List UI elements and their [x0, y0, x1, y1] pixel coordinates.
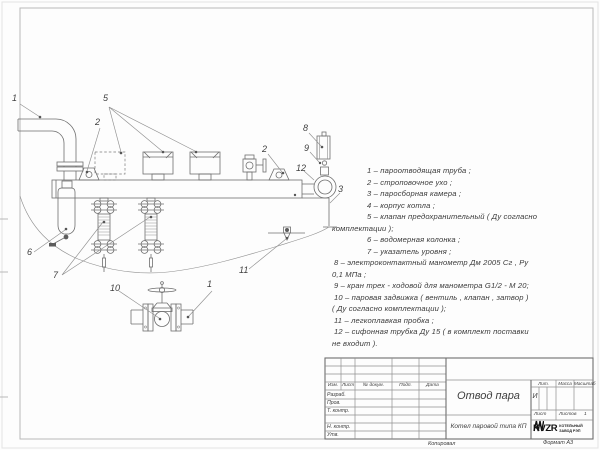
tb-header-podp: Подп.	[392, 383, 419, 388]
callout-safety-valves: 5	[103, 93, 108, 103]
tb-header-list: Лист	[341, 383, 355, 388]
parts-list-item: 5 – клапан предохранительный ( Ду соглас…	[367, 211, 595, 223]
lifting-lug-right	[269, 169, 289, 180]
callout-gate-valve: 10	[110, 283, 120, 293]
gate-valve	[131, 282, 193, 331]
parts-list-item: 2 – строповочное ухо ;	[367, 177, 595, 189]
boiler-shell-break-line	[20, 196, 329, 273]
drawing-sheet: 1 5 2 2 8 9 12 3 6 7 10 1 11 1 – пароотв…	[0, 0, 600, 450]
callout-siphon: 12	[296, 163, 306, 173]
callout-lug-left: 2	[95, 117, 100, 127]
tb-sheets-value: 1	[584, 412, 587, 417]
tb-header-data: Дата	[419, 383, 446, 388]
tb-scale-label: Масштаб	[574, 381, 593, 386]
parts-list-item: 1 – пароотводящая труба ;	[367, 165, 595, 177]
callout-cock: 9	[304, 143, 309, 153]
parts-list: 1 – пароотводящая труба ; 2 – строповочн…	[329, 165, 595, 349]
tb-lit-label: Лит.	[531, 381, 556, 386]
company-subtitle: КОТЕЛЬНЫЙ ЗАВОД РЭП	[559, 424, 582, 432]
parts-list-item: 10 – паровая задвижка ( вентиль , клапан…	[334, 292, 595, 304]
parts-list-item-wrap: не входит ).	[332, 338, 595, 350]
callout-manometer: 8	[303, 123, 308, 133]
tb-staff-nkontr: Н. контр.	[327, 424, 350, 430]
callout-column: 6	[27, 247, 32, 257]
parts-list-item-wrap: комплектации );	[332, 223, 595, 235]
tb-sheets-label: Листов	[559, 412, 576, 417]
coil-icon	[533, 420, 544, 432]
tb-staff-prov: Пров.	[327, 400, 341, 406]
parts-list-item: 8 – электроконтактный манометр Дм 2005 С…	[334, 257, 595, 269]
parts-list-item: 11 – легкоплавкая пробка ;	[334, 315, 595, 327]
tb-staff-tkontr: Т. контр.	[327, 408, 349, 414]
callout-lug-right: 2	[262, 144, 267, 154]
tb-staff-utv: Утв.	[327, 432, 339, 438]
parts-list-item: 6 – водомерная колонка ;	[367, 234, 595, 246]
tb-mass-label: Масса	[556, 381, 574, 386]
callout-pipe-2: 1	[207, 279, 212, 289]
format-label: Формат А3	[543, 440, 573, 446]
water-gauge-column	[49, 181, 75, 247]
level-indicator-1	[91, 198, 117, 272]
small-valve	[243, 155, 266, 180]
safety-valve-2	[190, 152, 220, 180]
parts-list-item-wrap: 0,1 МПа ;	[332, 269, 595, 281]
parts-list-item: 4 – корпус котла ;	[367, 200, 595, 212]
parts-list-item-wrap: ( Ду согласно комплектации );	[332, 303, 595, 315]
tb-header-izm: Изм.	[325, 383, 341, 388]
parts-list-item: 3 – паросборная камера ;	[367, 188, 595, 200]
level-indicator-2	[138, 198, 164, 272]
safety-valve-optional	[95, 152, 125, 180]
company-subtitle-line2: ЗАВОД РЭП	[559, 429, 580, 433]
safety-valve-1	[143, 152, 173, 180]
callout-plug: 11	[239, 265, 248, 275]
steam-manifold	[52, 180, 337, 227]
tb-lit-value: И	[531, 393, 539, 400]
product-name: Котел паровой типа КП	[446, 423, 531, 430]
company-logo: KVZR КОТЕЛЬНЫЙ ЗАВОД РЭП	[533, 420, 592, 437]
callout-pipe: 1	[12, 93, 17, 103]
copied-label: Копировал	[428, 441, 455, 447]
tb-header-ndoc: № докум.	[355, 383, 392, 388]
document-title: Отвод пара	[446, 390, 531, 402]
leader-lines	[20, 104, 340, 320]
parts-list-item: 12 – сифонная трубка Ду 15 ( в комплект …	[334, 326, 595, 338]
parts-list-item: 7 – указатель уровня ;	[367, 246, 595, 258]
callout-indicator: 7	[53, 270, 58, 280]
parts-list-item: 9 – кран трех - ходовой для манометра G1…	[334, 280, 595, 292]
steam-pipe	[18, 119, 83, 180]
fold-marks	[0, 219, 8, 397]
tb-sheet-label: Лист	[534, 412, 546, 417]
tb-staff-razrab: Разраб.	[327, 392, 346, 398]
